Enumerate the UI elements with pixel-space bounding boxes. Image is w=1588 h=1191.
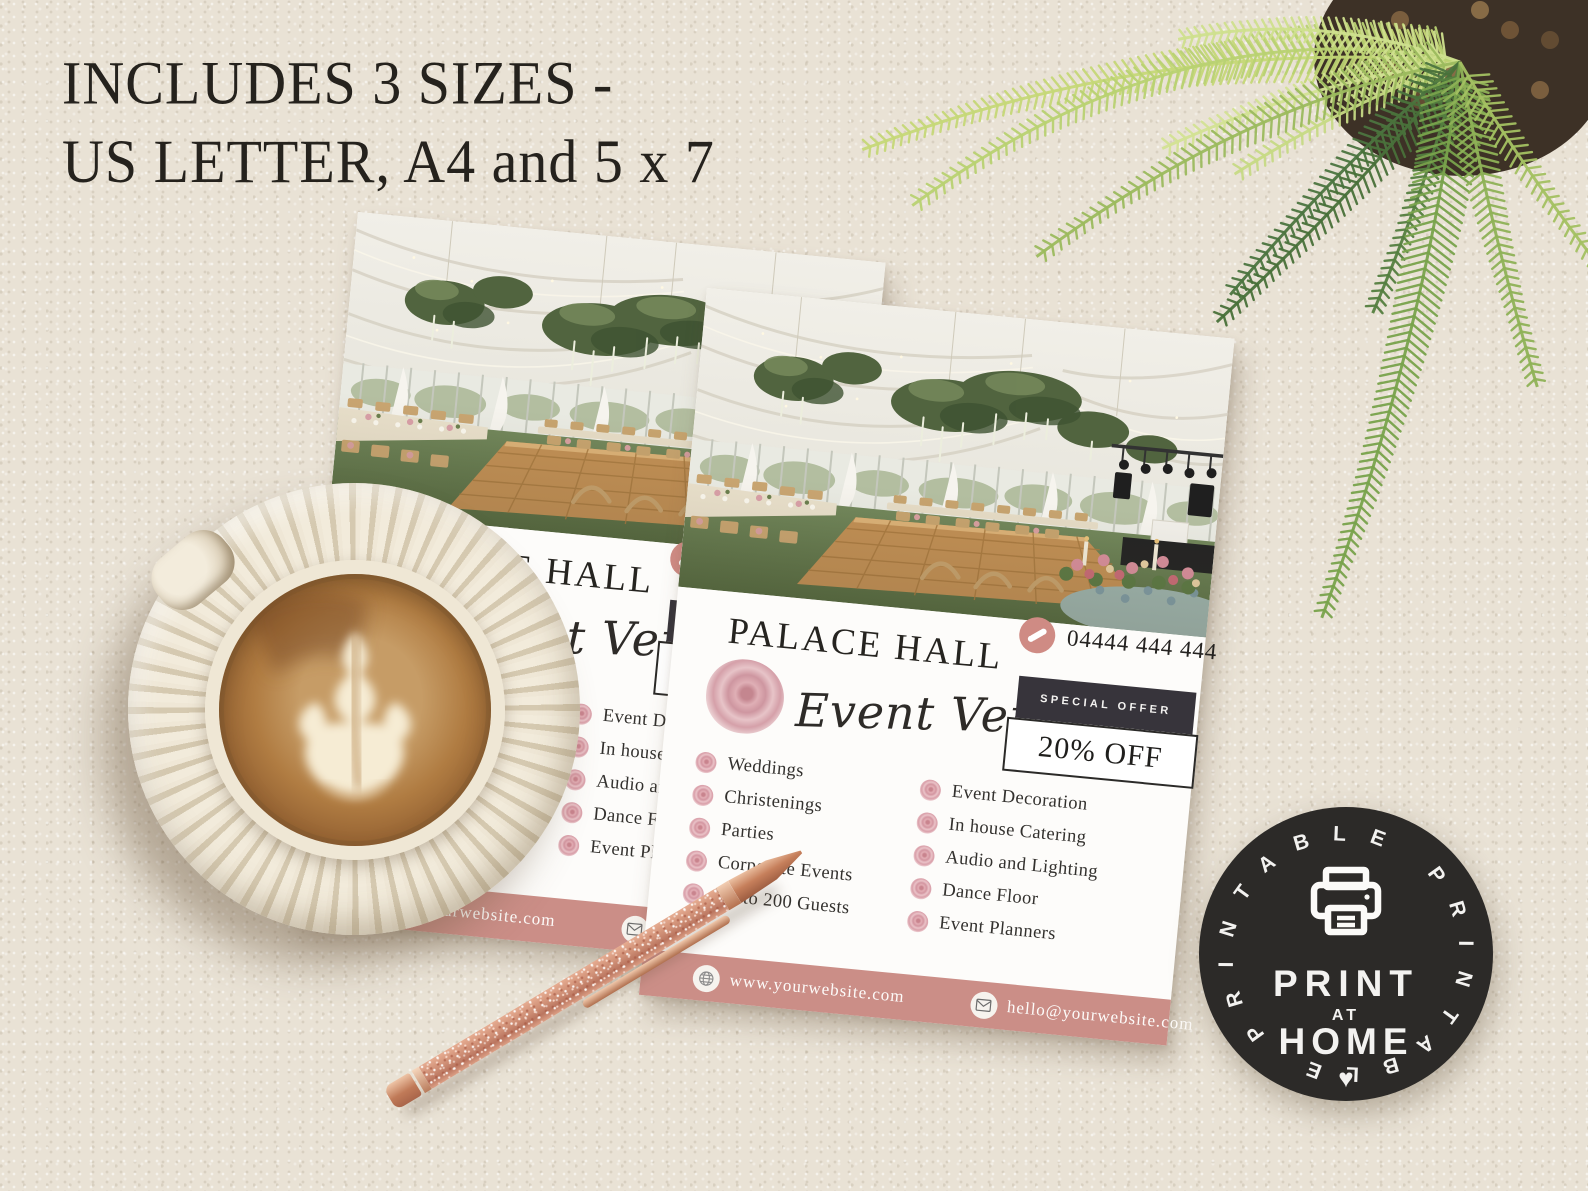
badge-line-1: PRINT bbox=[1273, 963, 1419, 1004]
latte bbox=[219, 574, 491, 846]
envelope-icon bbox=[969, 990, 998, 1019]
rose-icon bbox=[688, 817, 711, 840]
rose-icon bbox=[913, 844, 936, 867]
email-text: hello@yourwebsite.com bbox=[1006, 997, 1194, 1035]
phone-icon bbox=[1018, 616, 1057, 655]
flyer-front: PALACE HALL Event Venue 04444 444 444 SP… bbox=[639, 288, 1235, 1046]
heading-line-2: US LETTER, A4 and 5 x 7 bbox=[62, 123, 962, 202]
footer-bar: www.yourwebsite.com hello@yourwebsite.co… bbox=[639, 949, 1171, 1046]
website-text: www.yourwebsite.com bbox=[729, 970, 906, 1007]
rose-icon bbox=[560, 801, 583, 824]
print-at-home-badge: PRINTABLE PRINTABLE PRINT AT HOME ♥ bbox=[1196, 804, 1496, 1104]
heading-line-1: INCLUDES 3 SIZES - bbox=[62, 44, 962, 123]
latte-art bbox=[219, 574, 491, 846]
heading: INCLUDES 3 SIZES - US LETTER, A4 and 5 x… bbox=[62, 44, 962, 201]
rose-icon bbox=[685, 850, 708, 873]
rose-icon bbox=[909, 877, 932, 900]
services: Weddings Christenings Parties Corporate … bbox=[680, 751, 1178, 968]
email-group: hello@yourwebsite.com bbox=[969, 990, 1195, 1038]
website-group: www.yourwebsite.com bbox=[692, 963, 906, 1010]
offer-box: SPECIAL OFFER 20% OFF bbox=[1010, 676, 1196, 789]
rose-icon bbox=[695, 751, 718, 774]
badge-line-3: HOME bbox=[1279, 1021, 1414, 1062]
rose-icon bbox=[916, 812, 939, 835]
rose-icon bbox=[691, 784, 714, 807]
globe-icon bbox=[692, 963, 721, 992]
rose-icon bbox=[557, 834, 580, 857]
heart-icon: ♥ bbox=[1338, 1063, 1353, 1093]
rose-icon bbox=[703, 656, 788, 737]
services-right: Event Decoration In house Catering Audio… bbox=[905, 779, 1172, 967]
rose-icon bbox=[906, 910, 929, 933]
venue-photo bbox=[678, 288, 1234, 637]
rose-icon bbox=[919, 779, 942, 802]
